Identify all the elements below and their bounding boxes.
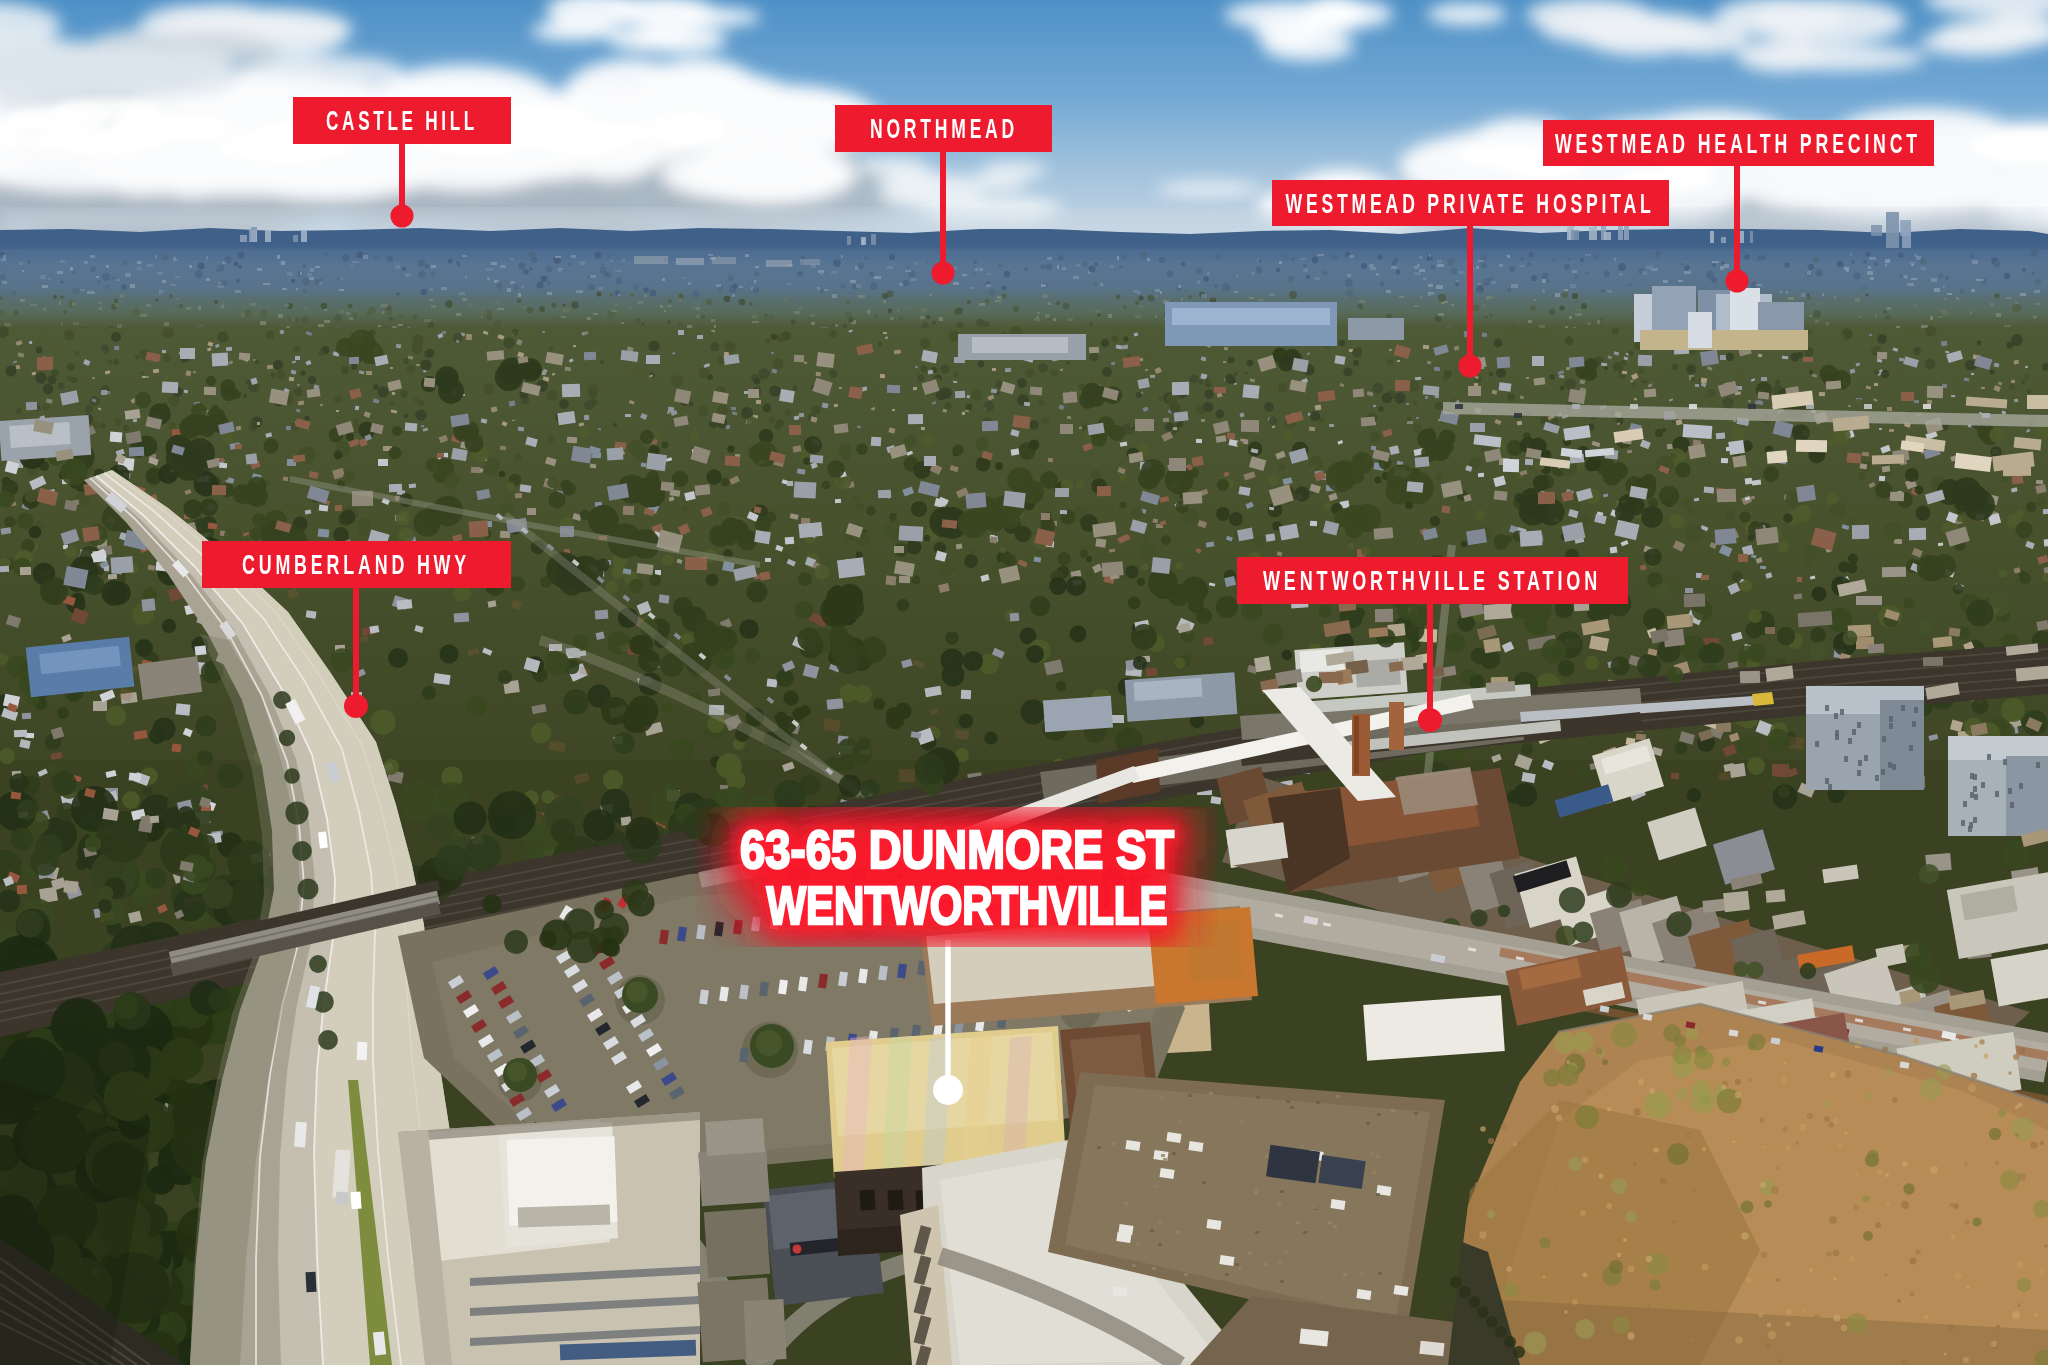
svg-text:WESTMEAD PRIVATE HOSPITAL: WESTMEAD PRIVATE HOSPITAL [1286,188,1655,219]
svg-text:WENTWORTHVILLE: WENTWORTHVILLE [767,875,1168,935]
svg-text:NORTHMEAD: NORTHMEAD [870,113,1018,144]
svg-text:CUMBERLAND HWY: CUMBERLAND HWY [242,549,470,580]
svg-text:CASTLE HILL: CASTLE HILL [326,105,478,136]
svg-text:63-65 DUNMORE ST: 63-65 DUNMORE ST [740,819,1174,879]
svg-text:WESTMEAD HEALTH PRECINCT: WESTMEAD HEALTH PRECINCT [1555,128,1921,159]
svg-text:WENTWORTHVILLE STATION: WENTWORTHVILLE STATION [1263,565,1601,596]
